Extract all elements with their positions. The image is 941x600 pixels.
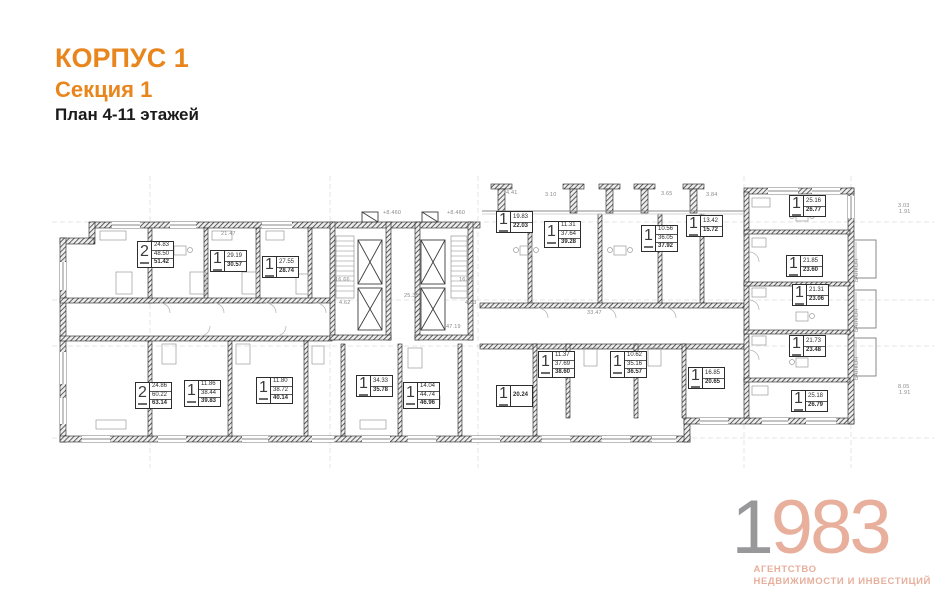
- balconies: [854, 240, 876, 376]
- brochure-page: КОРПУС 1 Секция 1 План 4-11 этажей: [0, 0, 941, 600]
- logo-agency-line2: НЕДВИЖИМОСТИ И ИНВЕСТИЦИЙ: [754, 576, 931, 588]
- logo-year: 1983: [732, 496, 931, 561]
- elevator-shafts: [358, 212, 445, 330]
- logo-year-first-digit: 1: [732, 485, 771, 570]
- agency-logo: 1983 АГЕНТСТВО НЕДВИЖИМОСТИ И ИНВЕСТИЦИЙ: [732, 496, 931, 588]
- stairs: [336, 236, 467, 298]
- logo-year-rest-digits: 983: [771, 485, 889, 570]
